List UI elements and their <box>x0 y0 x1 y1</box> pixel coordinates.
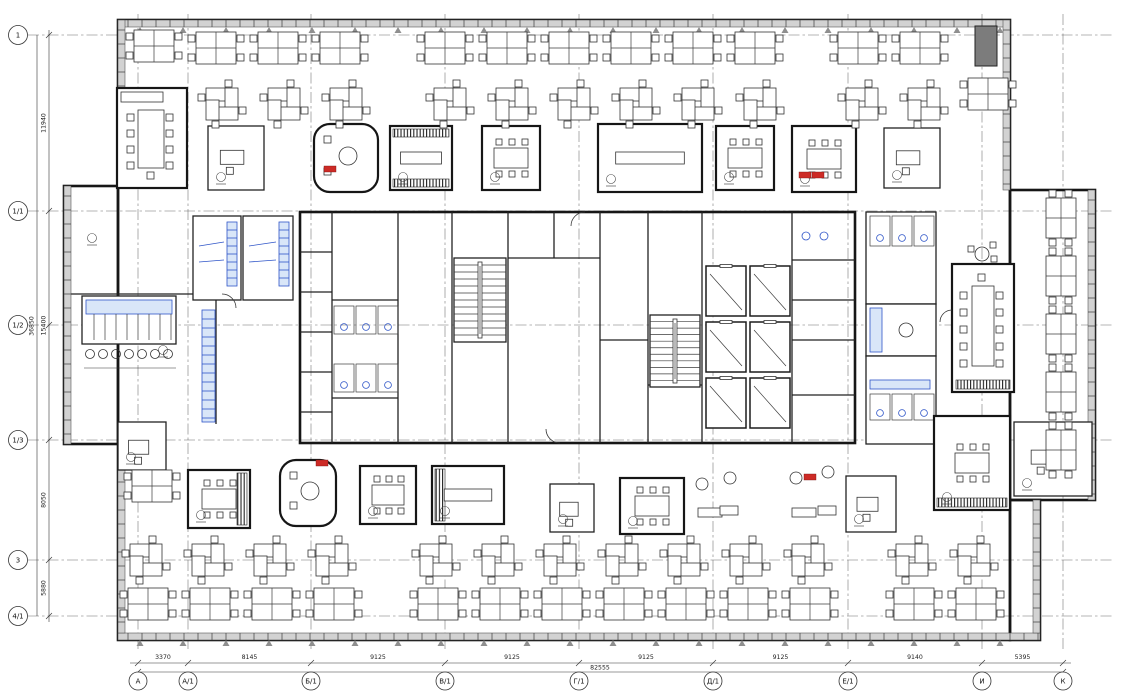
chair <box>1065 413 1072 420</box>
desk <box>129 440 149 454</box>
chair <box>166 114 173 121</box>
desk <box>515 88 528 108</box>
chair <box>590 54 597 61</box>
desk <box>896 151 920 165</box>
chair <box>244 610 251 617</box>
chair <box>1049 471 1056 478</box>
chair <box>603 54 610 61</box>
chair <box>169 591 176 598</box>
chair <box>163 563 170 570</box>
chair <box>990 242 996 248</box>
desk <box>639 88 652 108</box>
chair <box>687 536 694 543</box>
chair <box>964 577 971 584</box>
chair <box>591 107 598 114</box>
axis-label: И <box>979 678 984 686</box>
chair <box>652 35 659 42</box>
chair <box>865 80 872 87</box>
dimension-value: 9125 <box>504 654 520 661</box>
chair <box>935 591 942 598</box>
window-band <box>118 444 125 633</box>
chair <box>996 343 1003 350</box>
desk <box>254 556 267 576</box>
chair <box>714 35 721 42</box>
chair <box>566 519 573 526</box>
chair <box>386 476 392 482</box>
chair <box>536 550 543 557</box>
locker-strip <box>202 310 215 422</box>
chair <box>322 94 329 101</box>
sideboard <box>121 92 163 102</box>
chair <box>534 610 541 617</box>
toilet-icon <box>820 232 828 240</box>
chair <box>777 107 784 114</box>
desk <box>420 544 440 557</box>
kitchen-counter <box>86 300 172 314</box>
chair <box>184 550 191 557</box>
toilet-icon <box>385 324 392 331</box>
desk <box>920 107 940 120</box>
meeting-table <box>955 453 989 473</box>
stool <box>138 350 147 359</box>
desk <box>558 100 571 120</box>
chair <box>169 610 176 617</box>
desk <box>130 556 143 576</box>
chair <box>831 610 838 617</box>
desk <box>620 100 633 120</box>
chair <box>970 444 976 450</box>
chair <box>809 140 815 146</box>
chair <box>550 94 557 101</box>
chair <box>879 54 886 61</box>
chair <box>324 136 331 143</box>
chair <box>688 121 695 128</box>
chair <box>472 610 479 617</box>
chair <box>852 121 859 128</box>
chair <box>957 444 963 450</box>
axis-label: А <box>136 678 141 686</box>
chair <box>645 610 652 617</box>
axis-label: Б/1 <box>305 678 317 686</box>
chair <box>312 35 319 42</box>
chair <box>950 550 957 557</box>
chair <box>1009 100 1016 107</box>
desk <box>328 563 348 576</box>
chair <box>426 94 433 101</box>
toilet-icon <box>802 232 810 240</box>
stool <box>99 350 108 359</box>
chair <box>596 591 603 598</box>
desk <box>434 100 447 120</box>
desk <box>496 88 516 101</box>
desk <box>420 556 433 576</box>
desk <box>625 544 638 564</box>
chair <box>996 360 1003 367</box>
chair <box>204 480 210 486</box>
chair <box>528 54 535 61</box>
chair <box>650 519 656 525</box>
chair <box>707 610 714 617</box>
chair <box>237 35 244 42</box>
chair <box>417 35 424 42</box>
chair <box>977 536 984 543</box>
chair <box>182 591 189 598</box>
desk <box>432 563 452 576</box>
chair <box>335 536 342 543</box>
dimension-value: 8145 <box>242 654 258 661</box>
desk <box>896 556 909 576</box>
chair <box>336 121 343 128</box>
chair <box>522 139 528 145</box>
chair <box>879 107 886 114</box>
chair <box>188 54 195 61</box>
chair <box>948 610 955 617</box>
chair <box>502 121 509 128</box>
chair <box>175 33 182 40</box>
desk <box>908 88 928 101</box>
chair <box>756 139 762 145</box>
chair <box>590 35 597 42</box>
chair <box>960 326 967 333</box>
elevator-car <box>706 322 746 372</box>
elevator-door <box>720 377 732 380</box>
chair <box>596 610 603 617</box>
wet-zone-room <box>866 356 936 444</box>
desk <box>558 88 578 101</box>
chair <box>639 80 646 87</box>
chair <box>459 591 466 598</box>
desk <box>316 544 336 557</box>
chair <box>915 536 922 543</box>
booth-table <box>444 489 492 501</box>
chair <box>929 563 936 570</box>
acoustic-wall <box>956 380 1010 389</box>
chair <box>198 94 205 101</box>
acoustic-wall <box>435 469 445 521</box>
chair <box>120 591 127 598</box>
desk <box>804 563 824 576</box>
chair <box>1049 306 1056 313</box>
chair <box>892 54 899 61</box>
chair <box>914 121 921 128</box>
chair <box>798 577 805 584</box>
chair <box>250 35 257 42</box>
chair <box>355 591 362 598</box>
chair <box>960 100 967 107</box>
chair <box>888 550 895 557</box>
chair <box>244 591 251 598</box>
chair <box>838 94 845 101</box>
chair <box>583 610 590 617</box>
elevator-car <box>706 378 746 428</box>
chair <box>306 591 313 598</box>
dimension-value: 36850 <box>29 316 36 336</box>
chair <box>453 563 460 570</box>
chair <box>274 121 281 128</box>
lounge-chair <box>696 478 708 490</box>
chair <box>217 512 223 518</box>
chair <box>1049 297 1056 304</box>
chair <box>1037 467 1044 474</box>
chair <box>830 54 837 61</box>
chair <box>124 492 131 499</box>
chair <box>550 577 557 584</box>
desk <box>330 100 343 120</box>
chair <box>287 563 294 570</box>
wc-stall <box>356 364 376 392</box>
chair <box>127 130 134 137</box>
dimension-value: 9140 <box>907 654 923 661</box>
dimension-value: 82555 <box>590 665 610 672</box>
chair <box>763 80 770 87</box>
chair <box>650 487 656 493</box>
desk <box>142 563 162 576</box>
chair <box>363 107 370 114</box>
wc-stall <box>378 364 398 392</box>
chair <box>707 591 714 598</box>
lounge-pod <box>314 124 378 192</box>
chair <box>293 610 300 617</box>
chair <box>996 326 1003 333</box>
dimension-value: 5880 <box>41 580 48 596</box>
desk <box>508 107 528 120</box>
desk <box>335 544 348 564</box>
chair <box>301 107 308 114</box>
toilet-icon <box>341 324 348 331</box>
chair <box>472 591 479 598</box>
chair <box>960 360 967 367</box>
chair <box>776 54 783 61</box>
chair <box>727 35 734 42</box>
elevator-door <box>764 377 776 380</box>
chair <box>126 33 133 40</box>
floor-plan-drawing: 3370814591259125912591259140539582555АА/… <box>0 0 1128 695</box>
chair <box>968 246 974 252</box>
chair <box>308 550 315 557</box>
chair <box>541 35 548 42</box>
desk <box>858 107 878 120</box>
elevator-door <box>720 321 732 324</box>
facade-tick-icon <box>395 27 402 33</box>
chair <box>466 54 473 61</box>
desk <box>556 563 576 576</box>
chair <box>1009 81 1016 88</box>
chair <box>273 536 280 543</box>
chair <box>970 476 976 482</box>
chair <box>750 121 757 128</box>
chair <box>1065 239 1072 246</box>
window-band <box>118 633 1040 640</box>
chair <box>886 610 893 617</box>
lounge-pod <box>280 460 336 526</box>
desk <box>680 563 700 576</box>
facade-tick-icon <box>825 27 832 33</box>
chair <box>583 591 590 598</box>
facade-tick-icon <box>481 27 488 33</box>
facade-tick-icon <box>954 27 961 33</box>
chair <box>322 577 329 584</box>
chair <box>900 94 907 101</box>
chair <box>960 309 967 316</box>
door-swing <box>546 429 560 443</box>
chair <box>941 107 948 114</box>
toilet-icon <box>341 382 348 389</box>
wet-zone-room <box>866 212 936 304</box>
chair <box>763 563 770 570</box>
dimension-value: 9125 <box>638 654 654 661</box>
chair <box>299 35 306 42</box>
chair <box>1065 422 1072 429</box>
chair <box>863 514 870 521</box>
desk <box>744 88 764 101</box>
elevator-car <box>750 322 790 372</box>
chair <box>730 139 736 145</box>
chair <box>1065 297 1072 304</box>
facade-tick-icon <box>782 27 789 33</box>
toilet-icon <box>363 382 370 389</box>
chair <box>299 54 306 61</box>
desk <box>434 88 454 101</box>
equipment-marker <box>812 172 824 178</box>
chair <box>230 480 236 486</box>
desk <box>130 544 150 557</box>
chair <box>188 35 195 42</box>
desk <box>632 107 652 120</box>
chair <box>564 121 571 128</box>
chair <box>349 563 356 570</box>
chair <box>736 577 743 584</box>
chair <box>825 563 832 570</box>
desk <box>149 544 162 564</box>
chair <box>743 139 749 145</box>
chair <box>488 94 495 101</box>
chair <box>147 172 154 179</box>
chair <box>122 550 129 557</box>
chair <box>521 591 528 598</box>
chair <box>743 171 749 177</box>
chair <box>230 512 236 518</box>
desk <box>204 563 224 576</box>
chair <box>212 121 219 128</box>
chair <box>136 577 143 584</box>
wc-stall <box>378 306 398 334</box>
chair <box>306 610 313 617</box>
window-band <box>1033 500 1040 633</box>
chair <box>1049 190 1056 197</box>
booth-table <box>616 152 685 164</box>
chair <box>701 563 708 570</box>
meeting-table <box>728 148 762 168</box>
desk <box>280 107 300 120</box>
chair <box>625 536 632 543</box>
chair <box>1065 190 1072 197</box>
chair <box>902 577 909 584</box>
desk <box>811 544 824 564</box>
chair <box>412 550 419 557</box>
counter <box>870 380 930 389</box>
chair <box>941 35 948 42</box>
chair <box>720 610 727 617</box>
chair <box>927 80 934 87</box>
desk <box>254 544 274 557</box>
desk <box>792 556 805 576</box>
chair <box>1065 471 1072 478</box>
desk <box>730 544 750 557</box>
facade-tick-icon <box>309 27 316 33</box>
stool <box>86 350 95 359</box>
chair <box>488 577 495 584</box>
chair <box>1049 355 1056 362</box>
facade-tick-icon <box>997 27 1004 33</box>
chair <box>637 519 643 525</box>
desk <box>287 88 300 108</box>
elevator-door <box>764 265 776 268</box>
chair <box>645 591 652 598</box>
desk <box>192 544 212 557</box>
chair <box>440 121 447 128</box>
chair <box>217 480 223 486</box>
wc-stall <box>356 306 376 334</box>
conference-table <box>972 286 994 366</box>
chair <box>835 172 841 178</box>
chair <box>935 610 942 617</box>
chair <box>983 444 989 450</box>
chair <box>612 577 619 584</box>
desk <box>266 563 286 576</box>
equipment-marker <box>804 474 816 480</box>
desk <box>494 563 514 576</box>
chair <box>960 343 967 350</box>
chair <box>811 536 818 543</box>
chair <box>822 140 828 146</box>
chair <box>459 610 466 617</box>
chair <box>225 563 232 570</box>
chair <box>239 107 246 114</box>
chair <box>237 54 244 61</box>
chair <box>996 292 1003 299</box>
acoustic-wall <box>393 129 449 137</box>
chair <box>960 81 967 88</box>
desk <box>206 100 219 120</box>
lounge-chair <box>724 472 736 484</box>
axis-label: 1/1 <box>12 208 23 216</box>
chair <box>886 591 893 598</box>
desk <box>606 556 619 576</box>
chair <box>293 591 300 598</box>
chair <box>1065 248 1072 255</box>
chair <box>626 121 633 128</box>
dimension-value: 9125 <box>773 654 789 661</box>
equipment-marker <box>316 460 328 466</box>
door-swing <box>940 310 952 322</box>
chair <box>612 94 619 101</box>
axis-label: 1/2 <box>12 322 23 330</box>
acoustic-wall <box>237 473 247 525</box>
desk <box>865 88 878 108</box>
chair <box>996 309 1003 316</box>
chair <box>830 35 837 42</box>
chair <box>782 610 789 617</box>
desk <box>958 544 978 557</box>
chair <box>960 292 967 299</box>
chair <box>1049 413 1056 420</box>
door-swing <box>571 212 585 226</box>
wc-stall <box>334 364 354 392</box>
booth-table <box>401 152 442 164</box>
toilet-icon <box>385 382 392 389</box>
chair <box>211 536 218 543</box>
chair <box>501 536 508 543</box>
